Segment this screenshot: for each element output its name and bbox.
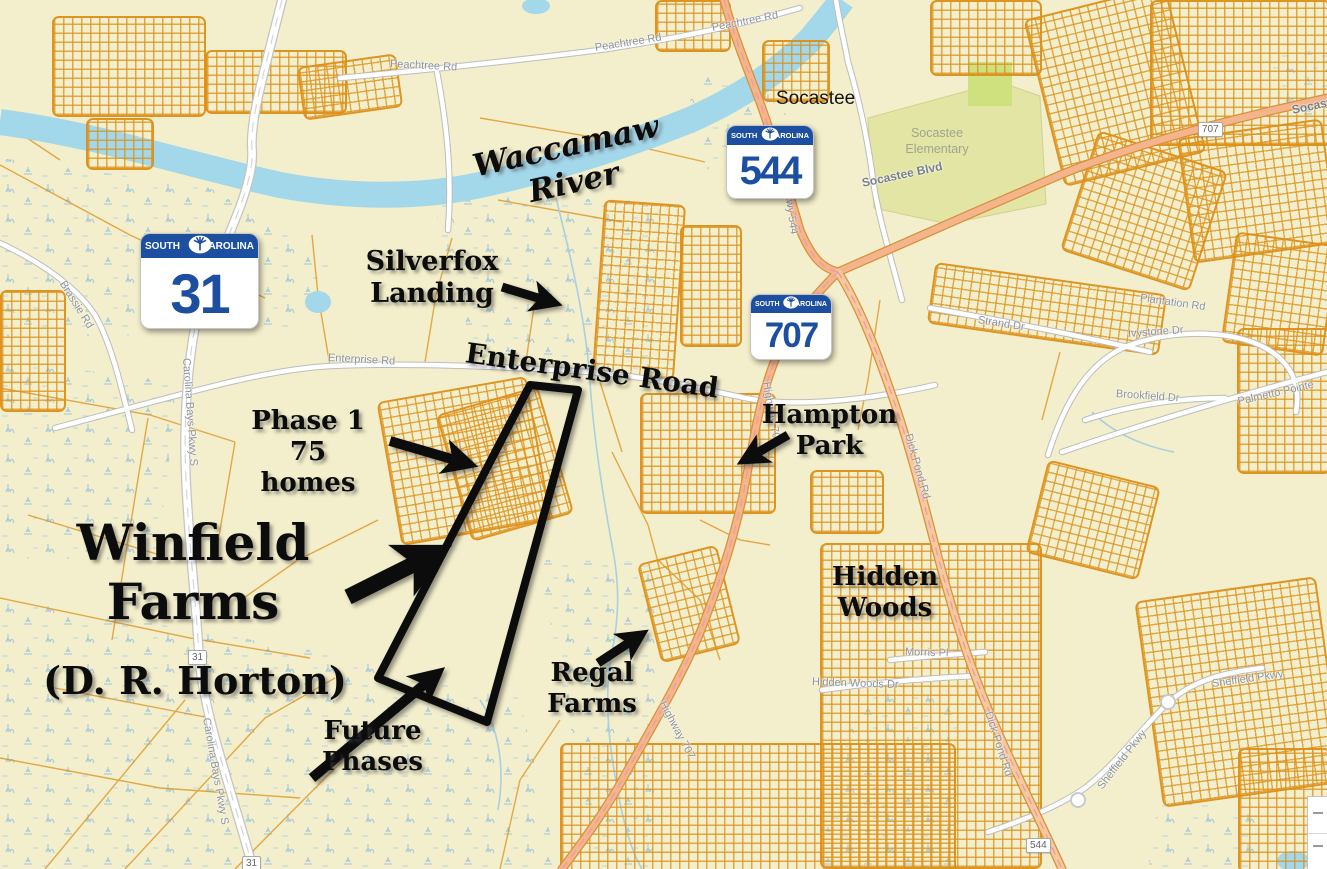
future-phases-label: Future Phases <box>315 716 430 778</box>
silverfox-arrow <box>502 287 548 301</box>
regal-farms-label: Regal Farms <box>538 658 646 720</box>
map-zoom-control-partial[interactable] <box>1307 796 1327 869</box>
developer-label: (D. R. Horton) <box>25 658 365 704</box>
map-canvas[interactable]: Peachtree Rd Peachtree Rd Peachtree Rd B… <box>0 0 1327 869</box>
winfield-arrow <box>348 557 428 597</box>
map-control-button-bottom[interactable] <box>1313 845 1323 847</box>
winfield-farms-title: Winfield Farms <box>28 513 358 631</box>
hidden-woods-label: Hidden Woods <box>826 562 944 624</box>
hampton-park-label: Hampton Park <box>752 400 907 462</box>
phase1-arrow <box>390 441 462 462</box>
control-divider <box>1308 833 1327 834</box>
phase1-label: Phase 1 75 homes <box>238 406 378 500</box>
silverfox-landing-label: Silverfox Landing <box>362 246 502 311</box>
map-control-button-top[interactable] <box>1313 812 1323 814</box>
